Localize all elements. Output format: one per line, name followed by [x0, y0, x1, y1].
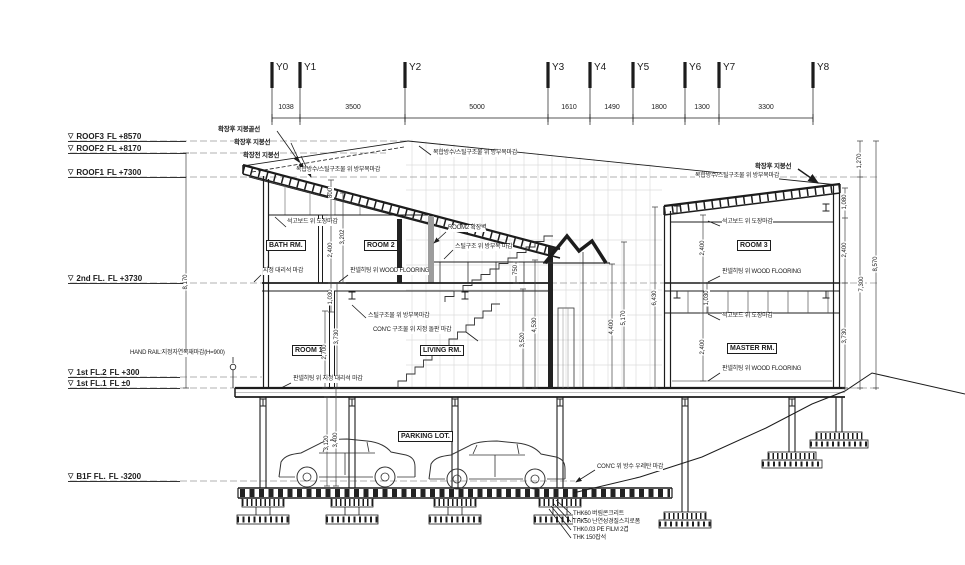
- level-name: ROOF1: [76, 168, 104, 177]
- room-label-parking: PARKING LOT.: [398, 431, 453, 442]
- dim-5170: 5,170: [621, 309, 627, 326]
- level-elevation: FL ±0: [110, 379, 131, 388]
- dim-800: 800: [328, 187, 334, 199]
- level-elevation: FL -3200: [109, 472, 141, 481]
- dim-6430: 6,430: [652, 289, 658, 306]
- callout-conc-stone: CON'C 구조물 위 지정 돌판 마감: [373, 327, 451, 334]
- level-1st-fl1: ▽1st FL.1FL ±0: [68, 379, 180, 389]
- dim-2400-chain: 2,400: [842, 241, 848, 258]
- car-right: [429, 441, 565, 489]
- room-label-room2: ROOM 2: [364, 240, 398, 251]
- level-elevation: FL +300: [110, 368, 140, 377]
- dim-8570: 8,570: [873, 255, 879, 272]
- callout-roof-after: 확장후 지붕선: [234, 139, 270, 146]
- level-elevation: FL +7300: [107, 168, 141, 177]
- dim-3520: 3,520: [520, 331, 526, 348]
- dim-7300: 7,300: [859, 275, 865, 292]
- level-name: ROOF3: [76, 132, 104, 141]
- dim-3202: 3,202: [340, 228, 346, 245]
- level-name: 2nd FL.: [76, 274, 104, 283]
- callout-roof-before: 확장전 지붕선: [243, 152, 279, 159]
- room-label-room3: ROOM 3: [737, 240, 771, 251]
- grid-label-y7: Y7: [723, 62, 735, 73]
- grid-span-dim: 1800: [651, 104, 667, 111]
- callout-roof-ridge-after: 확장후 지붕골선: [218, 126, 260, 133]
- callout-panel-marble: 판넬히팅 위 지정 대리석 마감: [293, 376, 363, 383]
- level-1st-fl2: ▽1st FL.2FL +300: [68, 368, 180, 378]
- callout-stair-steel-wood: 스틸구조 위 방부목 마감: [455, 244, 513, 251]
- callout-panel-wood-master: 판넬히팅 위 WOOD FLOORING: [722, 366, 801, 373]
- left-building: [235, 176, 845, 397]
- level-name: B1F FL.: [76, 472, 105, 481]
- level-name: ROOF2: [76, 144, 104, 153]
- room-label-room1: ROOM 1: [292, 345, 326, 356]
- dim-1080: 1,080: [842, 193, 848, 210]
- grid-span-dim: 1490: [604, 104, 620, 111]
- dim-2400-master: 2,400: [700, 338, 706, 355]
- dim-2400-left: 2,400: [328, 241, 334, 258]
- grid-label-y8: Y8: [817, 62, 829, 73]
- level-elevation: FL +8570: [107, 132, 141, 141]
- grid-label-y1: Y1: [304, 62, 316, 73]
- level-marker-icon: ▽: [68, 274, 73, 283]
- callout-conc-urethane: CON'C 위 방수 우레탄 마감: [597, 464, 663, 471]
- callout-marble: 지정 대리석 마감: [263, 268, 303, 275]
- level-roof3: ▽ROOF3FL +8570: [68, 132, 186, 142]
- dim-2700: 2,700: [322, 343, 328, 360]
- level-marker-icon: ▽: [68, 144, 73, 153]
- level-roof2: ▽ROOF2FL +8170: [68, 144, 186, 154]
- callout-panel-wood-room2: 판넬히팅 위 WOOD FLOORING: [350, 268, 429, 275]
- callout-steel-wood-mid: 스틸구조물 위 방부목마감: [368, 313, 429, 320]
- grid-label-y5: Y5: [637, 62, 649, 73]
- callout-gypsum-left: 석고보드 위 도장마감: [287, 219, 338, 226]
- level-elevation: FL +3730: [108, 274, 142, 283]
- level-marker-icon: ▽: [68, 472, 73, 481]
- dim-1270: 1,270: [857, 152, 863, 169]
- room-label-living: LIVING RM.: [420, 345, 464, 356]
- dim-4530: 4,530: [532, 316, 538, 333]
- architectural-section-drawing: Y0 Y1 Y2 Y3 Y4 Y5 Y6 Y7 Y8 1038 3500 500…: [0, 0, 965, 565]
- grid-span-dim: 5000: [469, 104, 485, 111]
- dim-3120: 3,120: [324, 434, 330, 451]
- dim-2400-room3: 2,400: [700, 239, 706, 256]
- cars: [279, 439, 565, 489]
- callout-b1f-layer-4: THK 150잡석: [573, 535, 606, 542]
- level-lines: [70, 141, 880, 481]
- level-roof1: ▽ROOF1FL +7300: [68, 168, 186, 178]
- callout-gypsum-master: 석고보드 위 도장마감: [722, 313, 773, 320]
- level-marker-icon: ▽: [68, 132, 73, 141]
- callout-b1f-layer-3: THK0.03 PE FILM 2겹: [573, 527, 629, 534]
- dim-3400: 3,400: [333, 431, 339, 448]
- level-name: 1st FL.2: [76, 368, 106, 377]
- callout-steel-wood-right: 복합방수/스틸구조물 위 방부목마감: [695, 173, 779, 180]
- grid-span-dim: 3500: [345, 104, 361, 111]
- callout-panel-wood-room3: 판넬히팅 위 WOOD FLOORING: [722, 269, 801, 276]
- dim-1030-right: 1,030: [704, 289, 710, 306]
- grid-label-y6: Y6: [689, 62, 701, 73]
- dim-left-8170: 8,170: [183, 273, 189, 290]
- level-2nd-fl: ▽2nd FL.FL +3730: [68, 274, 186, 284]
- level-name: 1st FL.1: [76, 379, 106, 388]
- grid-label-y3: Y3: [552, 62, 564, 73]
- level-b1f: ▽B1F FL.FL -3200: [68, 472, 180, 482]
- callout-roof-after-right: 확장후 지붕선: [755, 163, 791, 170]
- callout-steel-wood-top: 복합방수/스틸구조물 위 방부목마감: [433, 150, 517, 157]
- dim-3730-left: 3,730: [334, 328, 340, 345]
- grid-span-dim: 1610: [561, 104, 577, 111]
- room-label-master: MASTER RM.: [727, 343, 777, 354]
- level-marker-icon: ▽: [68, 379, 73, 388]
- basement-parking: [238, 397, 842, 512]
- grid-label-y0: Y0: [276, 62, 288, 73]
- level-marker-icon: ▽: [68, 168, 73, 177]
- grid-span-dim: 1038: [278, 104, 294, 111]
- callout-steel-wood-slope: 복합방수/스틸구조물 위 방부목마감: [296, 167, 380, 174]
- callout-gypsum-room3: 석고보드 위 도장마감: [722, 219, 773, 226]
- grid-span-dim: 3300: [758, 104, 774, 111]
- callout-handrail: HAND RAIL:지정자연목재마감(H=900): [130, 350, 225, 357]
- right-building: [664, 184, 840, 388]
- dim-1030-left: 1,030: [328, 288, 334, 305]
- room-label-bath: BATH RM.: [266, 240, 306, 251]
- dim-4400: 4,400: [609, 318, 615, 335]
- car-left: [279, 439, 415, 487]
- grid-label-y4: Y4: [594, 62, 606, 73]
- level-marker-icon: ▽: [68, 368, 73, 377]
- dim-750: 750: [513, 264, 519, 276]
- dim-3730-chain: 3,730: [842, 327, 848, 344]
- level-elevation: FL +8170: [107, 144, 141, 153]
- callout-b1f-layer-1: THK60 버림콘크리트: [573, 511, 624, 518]
- callout-room2-ext-wall: ROOM2 확장벽: [448, 225, 486, 232]
- grid-label-y2: Y2: [409, 62, 421, 73]
- terrain-line: [573, 373, 965, 493]
- callout-b1f-layer-2: THK50 난연성경질스치로폼: [573, 519, 640, 526]
- grid-span-dim: 1300: [694, 104, 710, 111]
